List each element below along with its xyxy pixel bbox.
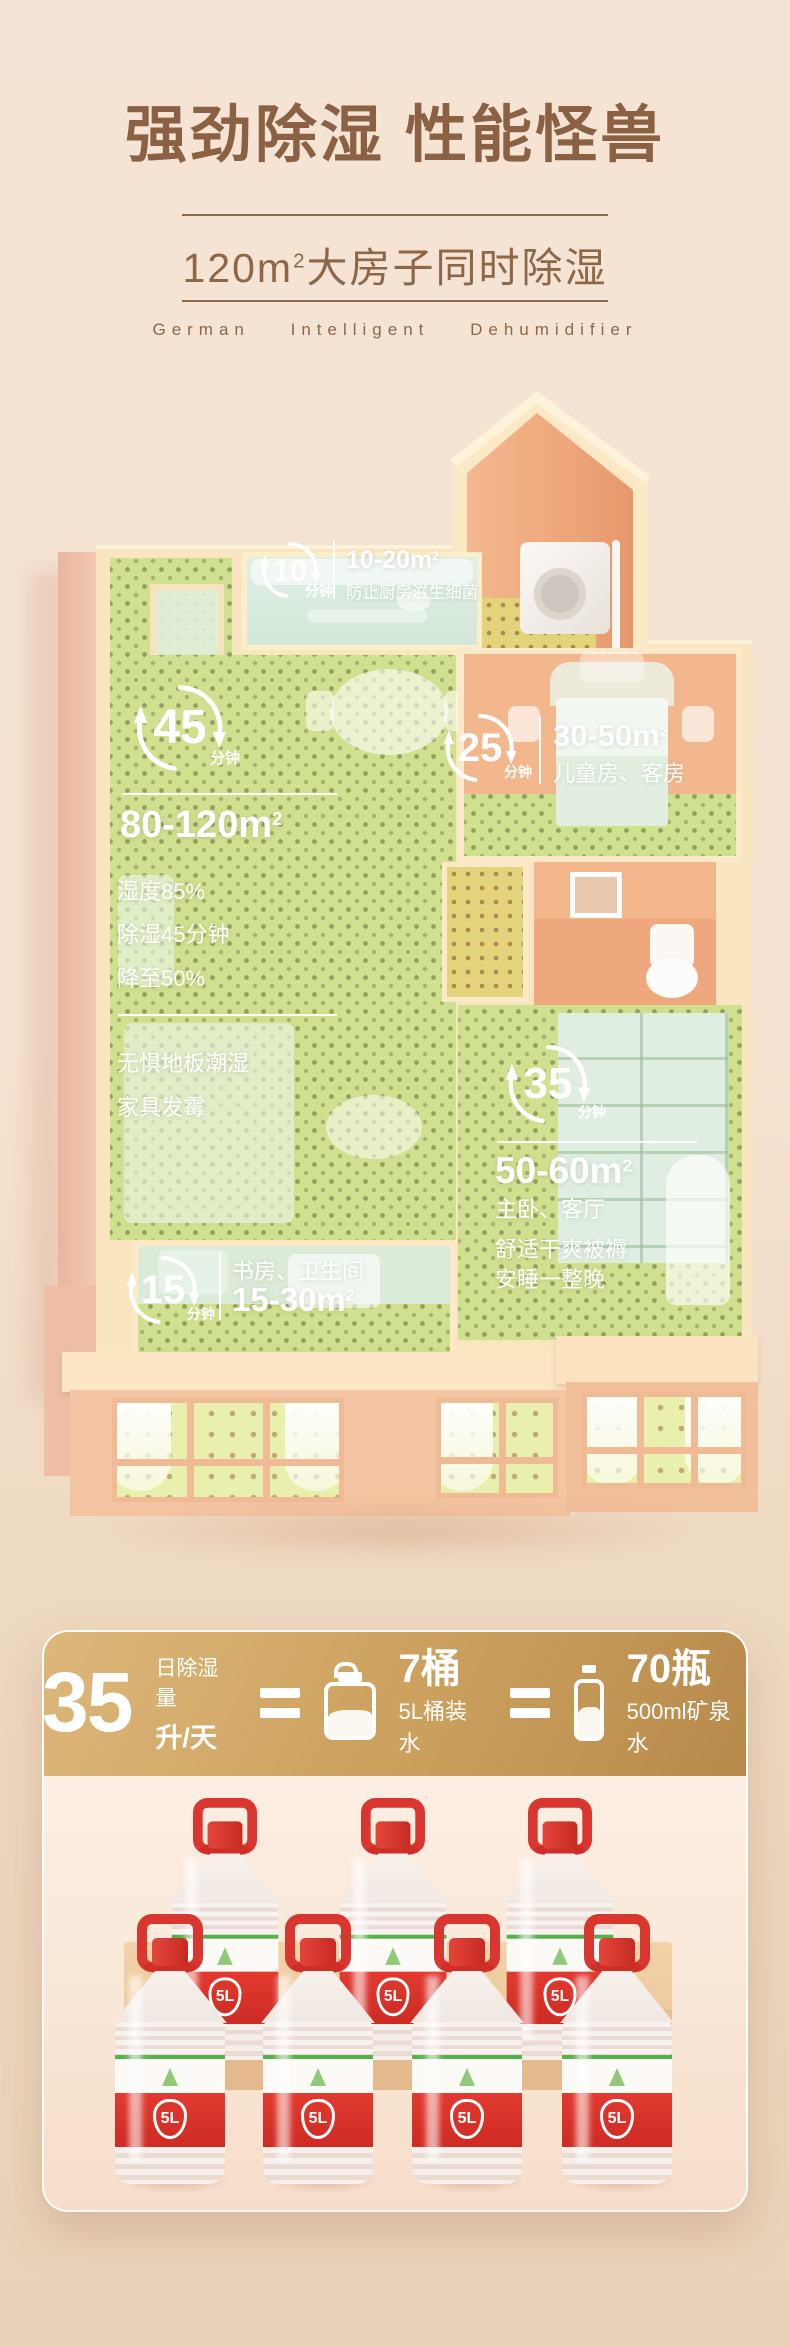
zone-desc: 防止厨房滋生细菌	[346, 579, 478, 603]
nightstand-shape	[682, 706, 714, 742]
zone-area: 15-30m2	[232, 1281, 355, 1319]
jug-quantity: 7桶	[399, 1648, 486, 1690]
window-mullion	[187, 1403, 194, 1497]
label-tree-logo	[162, 2068, 178, 2086]
zone-stat: 湿度85%	[117, 874, 205, 906]
vase-shape	[666, 1155, 730, 1305]
window-mullion	[587, 1447, 741, 1454]
subtitle-area: 120m	[183, 245, 294, 291]
subtitle-sup: 2	[293, 250, 306, 273]
zone-underline	[122, 793, 337, 795]
badge-master-minutes: 35 分钟	[504, 1040, 592, 1128]
window-mullion	[441, 1457, 553, 1464]
jug-equivalent: 7桶 5L桶装水	[399, 1648, 486, 1758]
zone-desc: 家具发霉	[117, 1090, 205, 1122]
toilet-room	[534, 862, 716, 1005]
zone-area: 30-50m2	[553, 718, 668, 754]
coffee-table-shape	[326, 1095, 422, 1159]
house-side-wall	[58, 552, 98, 1397]
zone-divider	[539, 716, 541, 784]
bottle-quantity: 70瓶	[627, 1648, 748, 1690]
kitchen-counter-shape	[307, 609, 427, 623]
jug-cap	[300, 1938, 336, 1966]
porch-window	[582, 1392, 746, 1488]
tagline: German Intelligent Dehumidifier	[0, 320, 790, 340]
capacity-label: 日除湿量	[155, 1652, 236, 1712]
zone-underline	[497, 1141, 697, 1143]
zone-stat: 降至50%	[117, 961, 205, 993]
label-tree-logo	[385, 1947, 401, 1964]
front-window-left	[112, 1398, 344, 1502]
dining-table-shape	[330, 669, 448, 755]
water-bottle-icon	[574, 1665, 603, 1741]
wall-art-shape	[580, 652, 644, 682]
front-window-right	[436, 1398, 558, 1498]
capacity-unit-label: 升/天	[155, 1716, 236, 1755]
water-jug-5l: 5L	[113, 1914, 227, 2184]
droplet-icon: 5L	[450, 2099, 484, 2139]
curtain-shape	[285, 1403, 344, 1491]
chair-shape	[306, 691, 334, 731]
porch-roof-slab	[556, 1336, 758, 1384]
jug-cap	[449, 1938, 485, 1966]
promo-page: 强劲除湿 性能怪兽 120m2大房子同时除湿 German Intelligen…	[0, 0, 790, 2347]
house-ground-shadow	[90, 1500, 710, 1560]
water-jug-5l: 5L	[410, 1914, 524, 2184]
curtain-shape	[112, 1403, 171, 1491]
zone-rooms: 儿童房、客房	[553, 756, 685, 788]
picture-frame	[570, 872, 622, 918]
jug-cap	[543, 1821, 578, 1848]
jug-cap	[152, 1938, 188, 1966]
daily-capacity-unit: 日除湿量 升/天	[155, 1652, 236, 1755]
jug-cap	[599, 1938, 635, 1966]
zone-desc: 舒适干爽被褥	[495, 1232, 627, 1264]
toilet-bowl-shape	[646, 958, 698, 998]
zone-minutes-unit: 分钟	[187, 1304, 215, 1324]
badge-living-minutes: 45 分钟	[132, 680, 228, 776]
zone-minutes-unit: 分钟	[210, 747, 240, 768]
badge-kitchen-minutes: 10 分钟	[259, 539, 321, 601]
jug-cap	[376, 1821, 411, 1848]
zone-minutes-unit: 分钟	[504, 762, 532, 782]
divider-top	[182, 214, 608, 216]
water-jug-icon	[324, 1666, 374, 1740]
badge-study-minutes: 15 分钟	[125, 1252, 201, 1328]
curtain-shape	[436, 1403, 493, 1491]
zone-minutes-unit: 分钟	[305, 581, 333, 601]
zone-desc: 无惧地板潮湿	[117, 1046, 249, 1078]
zone-underline	[118, 1014, 337, 1016]
window-mullion	[263, 1403, 270, 1497]
subtitle-text: 大房子同时除湿	[306, 245, 607, 291]
zone-divider	[219, 1252, 221, 1320]
water-jug-5l: 5L	[261, 1914, 375, 2184]
window-mullion	[499, 1403, 506, 1493]
daily-capacity-value: 35	[42, 1665, 131, 1741]
label-tree-logo	[310, 2068, 326, 2086]
divider-bottom	[182, 300, 608, 302]
washing-machine-door	[534, 568, 586, 620]
zone-area: 50-60m2	[495, 1150, 632, 1192]
bathroom-tile-door	[442, 862, 528, 1002]
page-subtitle: 120m2大房子同时除湿	[0, 234, 790, 294]
bottle-description: 500ml矿泉水	[627, 1694, 748, 1758]
water-jug-5l: 5L	[560, 1914, 674, 2184]
zone-stat: 除湿45分钟	[117, 917, 229, 949]
zone-rooms: 主卧、客厅	[495, 1192, 605, 1224]
jug-cap	[208, 1821, 243, 1848]
capacity-banner: 35 日除湿量 升/天 7桶 5L桶装水 70瓶 500ml	[42, 1630, 748, 1776]
curtain-shape	[582, 1397, 643, 1485]
droplet-icon: 5L	[301, 2099, 335, 2139]
zone-divider	[333, 541, 335, 599]
window-mullion	[691, 1397, 698, 1483]
label-tree-logo	[459, 2068, 475, 2086]
badge-kids-minutes: 25 分钟	[442, 710, 518, 786]
window-mullion	[637, 1397, 644, 1483]
droplet-icon: 5L	[377, 1978, 410, 2017]
droplet-icon: 5L	[153, 2099, 187, 2139]
page-title: 强劲除湿 性能怪兽	[0, 84, 790, 174]
zone-minutes-unit: 分钟	[578, 1102, 606, 1122]
zone-area: 10-20m2	[346, 546, 439, 575]
zone-area: 80-120m2	[120, 804, 282, 847]
equals-icon	[260, 1688, 300, 1718]
window-mullion	[117, 1459, 339, 1466]
jug-description: 5L桶装水	[399, 1694, 486, 1758]
droplet-icon: 5L	[600, 2099, 634, 2139]
bottle-equivalent: 70瓶 500ml矿泉水	[627, 1648, 748, 1758]
zone-desc: 安睡一整晚	[495, 1262, 605, 1294]
label-tree-logo	[609, 2068, 625, 2086]
equals-icon	[510, 1688, 550, 1718]
